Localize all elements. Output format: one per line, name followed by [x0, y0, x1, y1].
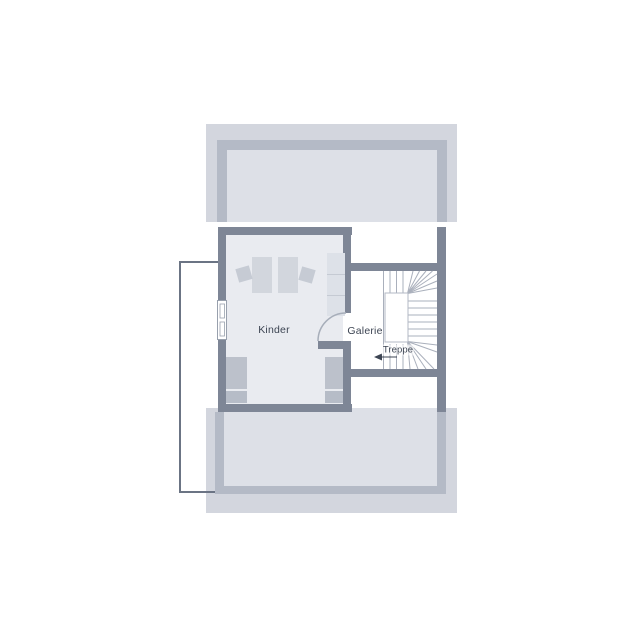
galerie-room-label: Galerie [347, 325, 382, 337]
roof-wall-top-left [217, 140, 227, 222]
bed-right-foot [325, 391, 343, 403]
galerie-wall-bottom [343, 369, 446, 377]
floor-plan: Kinder Galerie Treppe [0, 0, 636, 636]
door-leaf [318, 341, 351, 349]
stair-void [385, 293, 408, 342]
roof-interior-bottom [224, 408, 437, 486]
ground-floor-footprint-outline [179, 261, 220, 493]
wardrobe-divider [327, 295, 345, 296]
treppe-label: Treppe [382, 345, 414, 356]
wardrobe-divider [327, 274, 345, 275]
roof-interior-top [227, 150, 437, 222]
exterior-wall-right [437, 227, 446, 412]
wardrobe [327, 253, 345, 316]
kinder-wall-top [218, 227, 352, 235]
roof-wall-bottom-right [437, 410, 446, 494]
kinder-wall-bottom [218, 404, 352, 412]
desk-left [252, 257, 272, 293]
roof-wall-top-right [437, 140, 447, 222]
desk-right [278, 257, 298, 293]
kinder-room-label: Kinder [258, 324, 290, 336]
bed-right-body [325, 357, 343, 389]
bed-left-foot [226, 391, 247, 403]
bed-left-body [226, 357, 247, 389]
roof-wall-bottom [215, 486, 446, 494]
stair-wall-top [343, 263, 446, 271]
roof-wall-top [217, 140, 447, 150]
exterior-wall-left [218, 227, 226, 412]
roof-wall-bottom-left [215, 412, 224, 494]
